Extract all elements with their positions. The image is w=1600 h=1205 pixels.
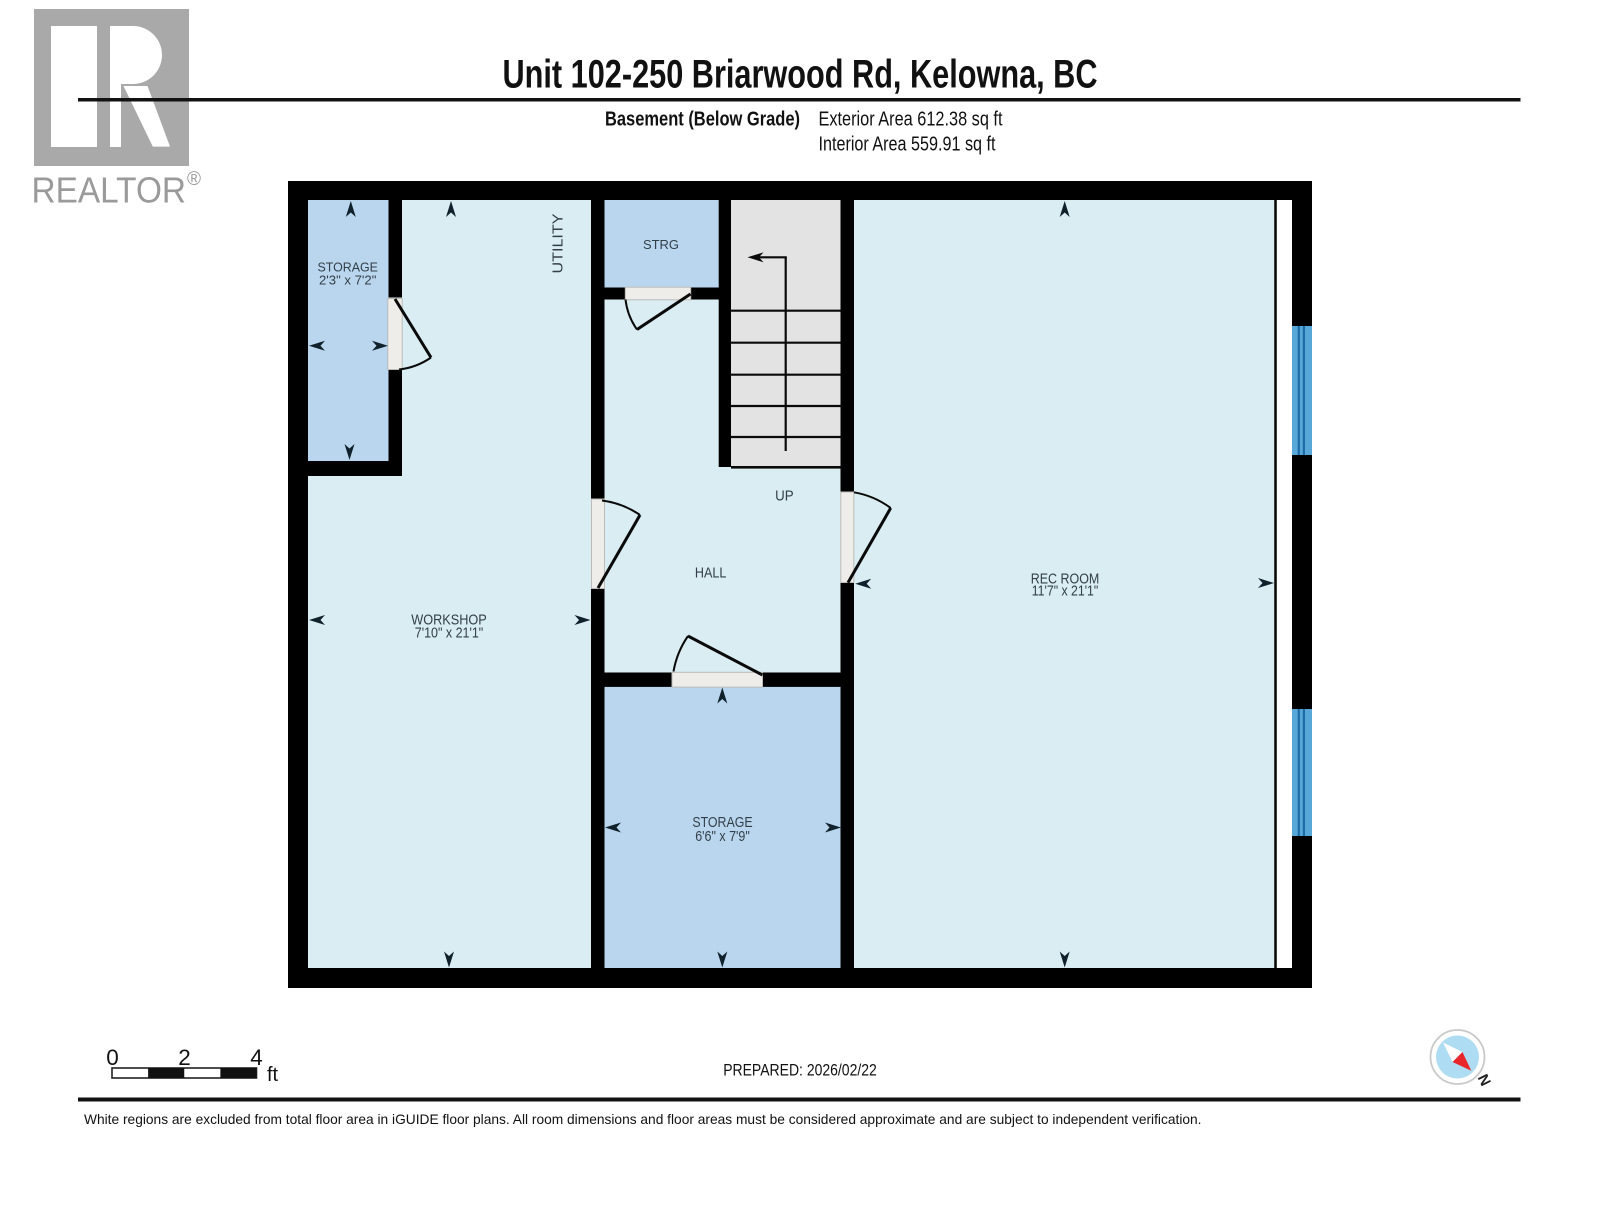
- svg-text:REALTOR: REALTOR: [32, 170, 187, 211]
- svg-text:White regions are excluded fro: White regions are excluded from total fl…: [84, 1111, 1202, 1127]
- svg-text:STRG: STRG: [643, 238, 679, 252]
- svg-text:6'6" x 7'9": 6'6" x 7'9": [695, 829, 750, 845]
- svg-text:STORAGE: STORAGE: [317, 260, 378, 274]
- svg-text:ft: ft: [267, 1064, 279, 1086]
- svg-text:4: 4: [250, 1045, 263, 1070]
- svg-text:7'10" x 21'1": 7'10" x 21'1": [415, 626, 484, 642]
- svg-text:2'3" x 7'2": 2'3" x 7'2": [319, 273, 376, 287]
- svg-text:®: ®: [187, 169, 201, 190]
- svg-text:Unit 102-250 Briarwood Rd, Kel: Unit 102-250 Briarwood Rd, Kelowna, BC: [503, 53, 1098, 97]
- svg-text:UP: UP: [775, 489, 794, 505]
- svg-text:Interior Area 559.91 sq ft: Interior Area 559.91 sq ft: [819, 134, 996, 156]
- svg-text:HALL: HALL: [695, 565, 727, 581]
- svg-text:UTILITY: UTILITY: [550, 214, 567, 274]
- svg-text:Basement (Below Grade): Basement (Below Grade): [605, 109, 800, 131]
- svg-text:2: 2: [178, 1045, 191, 1070]
- svg-text:PREPARED: 2026/02/22: PREPARED: 2026/02/22: [723, 1061, 877, 1080]
- svg-text:0: 0: [106, 1045, 119, 1070]
- svg-text:Exterior Area 612.38 sq ft: Exterior Area 612.38 sq ft: [819, 109, 1003, 131]
- svg-text:11'7" x 21'1": 11'7" x 21'1": [1032, 583, 1099, 600]
